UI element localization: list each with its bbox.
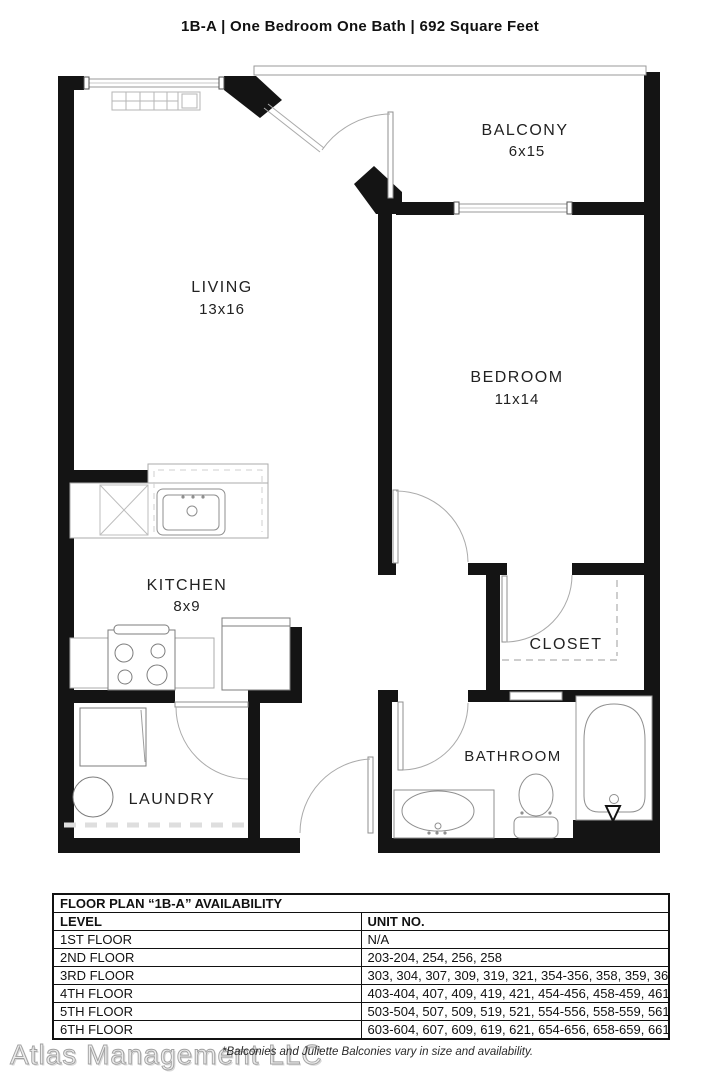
bathroom-door-swing	[403, 703, 468, 770]
units-cell: 603-604, 607, 609, 619, 621, 654-656, 65…	[361, 1021, 669, 1040]
table-row: 1ST FLOOR N/A	[53, 931, 669, 949]
balcony-dims: 6x15	[509, 143, 546, 160]
heater-unit	[112, 92, 200, 110]
level-cell: 3RD FLOOR	[53, 967, 361, 985]
bathroom-niche	[510, 692, 562, 700]
balcony-door-leaf	[388, 112, 393, 198]
bathtub	[576, 696, 652, 821]
balcony-door-panel	[268, 104, 324, 148]
laundry-door-leaf	[175, 702, 248, 707]
table-header-row: LEVEL UNIT NO.	[53, 913, 669, 931]
bedroom-door-leaf	[393, 490, 398, 563]
availability-table: FLOOR PLAN “1B-A” AVAILABILITY LEVEL UNI…	[52, 893, 670, 1040]
table-row: 3RD FLOOR 303, 304, 307, 309, 319, 321, …	[53, 967, 669, 985]
toilet	[514, 774, 558, 838]
table-title-row: FLOOR PLAN “1B-A” AVAILABILITY	[53, 894, 669, 913]
kitchen-dims: 8x9	[173, 598, 200, 615]
bedroom-door-swing	[396, 491, 468, 562]
laundry-label: LAUNDRY	[129, 791, 216, 808]
level-cell: 5TH FLOOR	[53, 1003, 361, 1021]
units-cell: 503-504, 507, 509, 519, 521, 554-556, 55…	[361, 1003, 669, 1021]
kitchen-label: KITCHEN	[147, 577, 228, 594]
stove	[108, 625, 175, 690]
balcony-label: BALCONY	[482, 122, 569, 139]
laundry-door-swing	[176, 707, 248, 779]
bathroom-door-leaf	[398, 702, 403, 770]
col-header-units: UNIT NO.	[361, 913, 669, 931]
closet-label: CLOSET	[529, 636, 602, 653]
entry-door-swing	[300, 759, 370, 833]
level-cell: 1ST FLOOR	[53, 931, 361, 949]
balcony-disclaimer: *Balconies and Juliette Balconies vary i…	[222, 1046, 533, 1058]
living-window	[84, 77, 224, 89]
bathroom-vanity	[394, 790, 494, 838]
bedroom-dims: 11x14	[495, 391, 540, 408]
units-cell: 203-204, 254, 256, 258	[361, 949, 669, 967]
units-cell: 403-404, 407, 409, 419, 421, 454-456, 45…	[361, 985, 669, 1003]
units-cell: N/A	[361, 931, 669, 949]
walls	[58, 72, 660, 853]
bedroom-label: BEDROOM	[470, 369, 563, 386]
entry-door-leaf	[368, 757, 373, 833]
balcony-door-swing	[322, 114, 390, 150]
bathroom-label: BATHROOM	[464, 748, 562, 765]
washer	[80, 708, 146, 766]
laundry-basin	[73, 777, 113, 817]
table-row: 6TH FLOOR 603-604, 607, 609, 619, 621, 6…	[53, 1021, 669, 1040]
living-label: LIVING	[191, 279, 252, 296]
refrigerator	[222, 618, 290, 690]
table-title: FLOOR PLAN “1B-A” AVAILABILITY	[53, 894, 669, 913]
living-dims: 13x16	[199, 301, 245, 318]
balcony-railing	[254, 66, 646, 75]
kitchen-sink	[157, 489, 225, 535]
bedroom-window	[454, 202, 572, 214]
table-row: 2ND FLOOR 203-204, 254, 256, 258	[53, 949, 669, 967]
units-cell: 303, 304, 307, 309, 319, 321, 354-356, 3…	[361, 967, 669, 985]
level-cell: 4TH FLOOR	[53, 985, 361, 1003]
table-row: 5TH FLOOR 503-504, 507, 509, 519, 521, 5…	[53, 1003, 669, 1021]
level-cell: 6TH FLOOR	[53, 1021, 361, 1040]
closet-door-swing	[506, 575, 572, 642]
table-row: 4TH FLOOR 403-404, 407, 409, 419, 421, 4…	[53, 985, 669, 1003]
col-header-level: LEVEL	[53, 913, 361, 931]
balcony-door-panel	[264, 108, 320, 152]
closet-door-leaf	[502, 576, 507, 642]
level-cell: 2ND FLOOR	[53, 949, 361, 967]
floor-plan: LIVING 13x16 BALCONY 6x15 BEDROOM 11x14 …	[0, 0, 720, 880]
